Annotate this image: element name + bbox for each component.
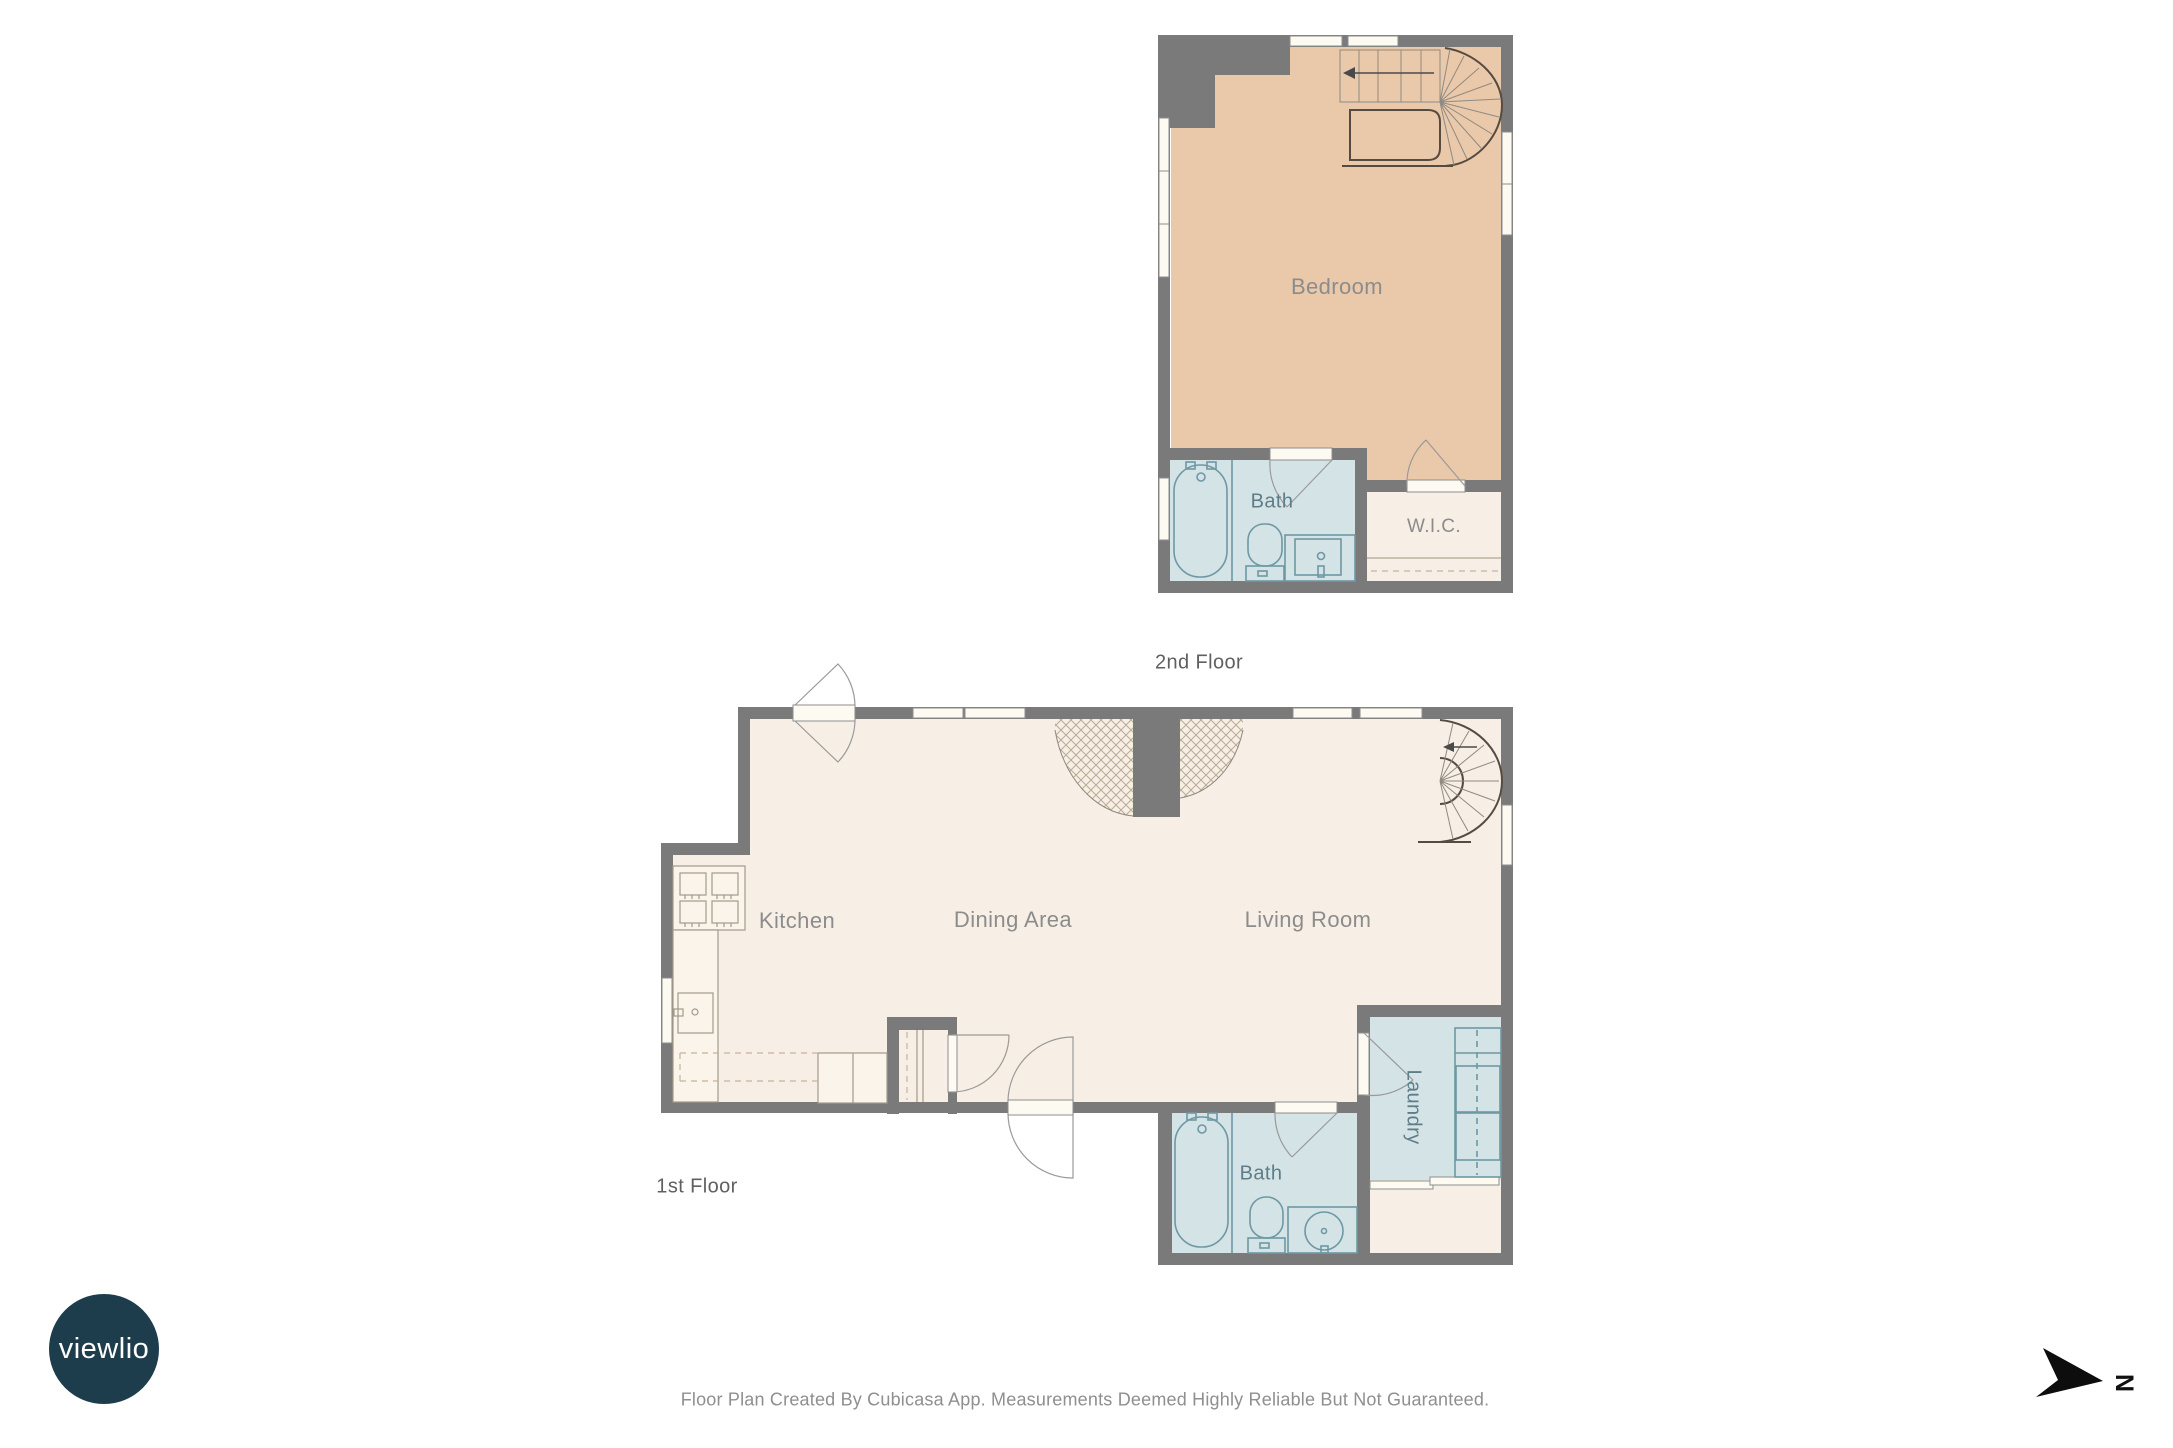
north-label: N (2110, 1374, 2138, 1392)
wic-label: W.I.C. (1407, 516, 1461, 538)
north-arrow-icon (2036, 1348, 2103, 1397)
kitchen-label: Kitchen (759, 908, 835, 934)
bath-label-1f: Bath (1240, 1163, 1283, 1186)
north-compass: N (2020, 1335, 2150, 1425)
disclaimer-text: Floor Plan Created By Cubicasa App. Meas… (681, 1390, 1490, 1411)
second-floor-plan (1158, 35, 1513, 593)
floor-plan-page: Bedroom Bath W.I.C. Kitchen Dining Area … (0, 0, 2173, 1448)
first-floor-title: 1st Floor (656, 1176, 737, 1199)
bedroom-floor (1171, 47, 1501, 480)
dining-area-label: Dining Area (954, 907, 1072, 933)
living-room-label: Living Room (1245, 907, 1372, 933)
laundry-label: Laundry (1402, 1069, 1425, 1144)
laundry-closet-floor (1370, 1180, 1501, 1253)
bedroom-label: Bedroom (1291, 274, 1383, 300)
viewlio-logo-text: viewlio (59, 1333, 150, 1366)
first-floor-plan (661, 630, 1513, 1275)
second-floor-title: 2nd Floor (1155, 652, 1243, 675)
bath-label-2f: Bath (1251, 491, 1294, 514)
laundry-floor (1370, 1017, 1501, 1180)
stove-icon (673, 866, 745, 930)
viewlio-logo: viewlio (49, 1294, 159, 1404)
